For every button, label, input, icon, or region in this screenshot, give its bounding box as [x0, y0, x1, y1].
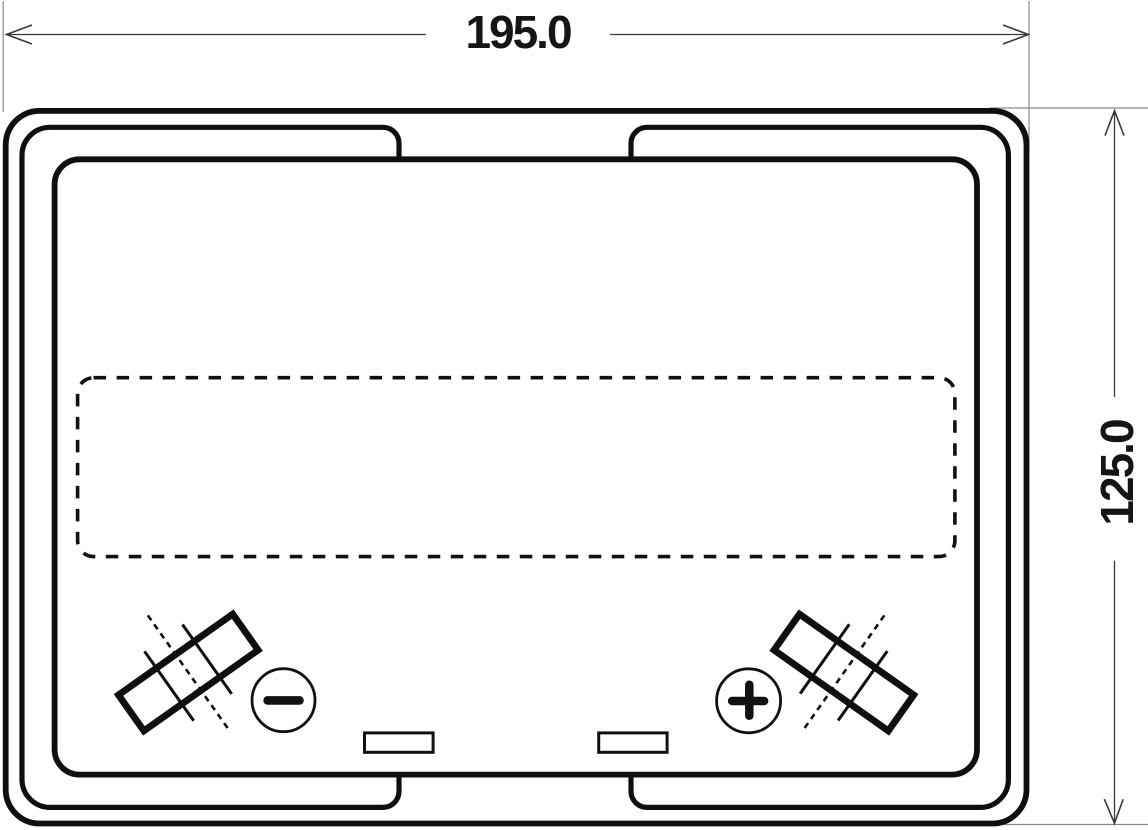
svg-text:195.0: 195.0: [465, 6, 571, 58]
svg-text:125.0: 125.0: [1091, 420, 1143, 526]
